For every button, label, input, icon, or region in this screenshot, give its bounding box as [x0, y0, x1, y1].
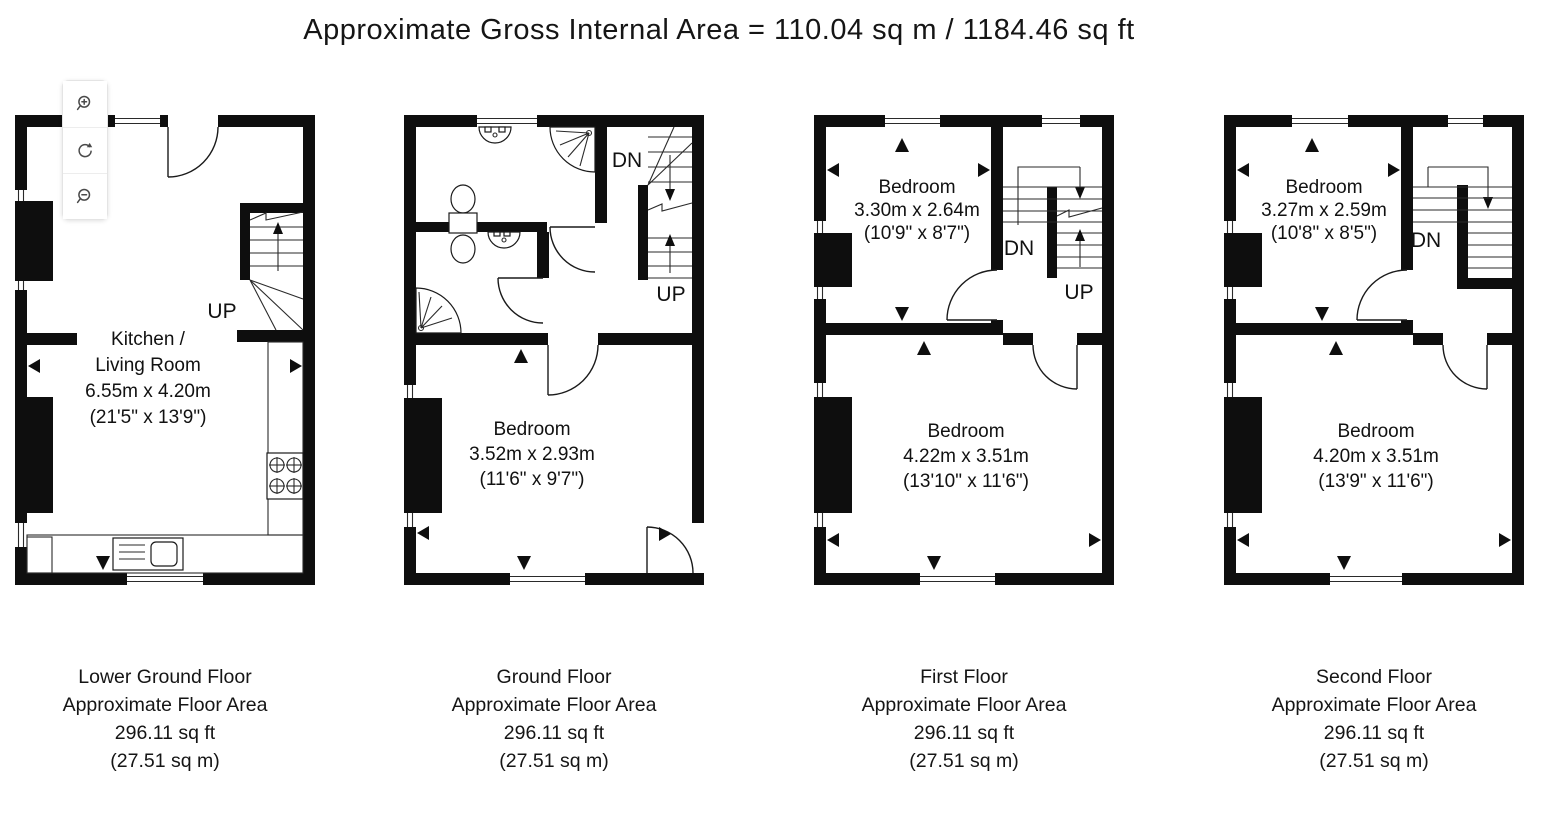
rotate-button[interactable]	[63, 127, 107, 173]
rotate-arrows-icon	[75, 141, 95, 161]
caption-area-sqm: (27.51 sq m)	[1224, 747, 1524, 775]
caption-floor-name: First Floor	[814, 663, 1114, 691]
caption-area-title: Approximate Floor Area	[814, 691, 1114, 719]
floor-caption: Ground Floor Approximate Floor Area 296.…	[404, 663, 704, 775]
caption-area-title: Approximate Floor Area	[15, 691, 315, 719]
staircase	[250, 212, 303, 330]
caption-area-title: Approximate Floor Area	[1224, 691, 1524, 719]
magnifier-plus-icon	[75, 94, 95, 114]
page-title: Approximate Gross Internal Area = 110.04…	[0, 14, 1548, 47]
room-label: Bedroom	[878, 177, 955, 198]
stair-down-label: DN	[1411, 229, 1441, 252]
floorplan-page: Approximate Gross Internal Area = 110.04…	[0, 0, 1548, 835]
room-dimensions-imperial: (13'9" x 11'6")	[1318, 471, 1433, 492]
staircase	[648, 127, 692, 278]
room-label: Kitchen /	[111, 329, 186, 350]
room-label: Living Room	[95, 355, 201, 376]
floor-first: DN UP Bedroom 3.30m x 2.64m (10'9" x 8'7…	[814, 115, 1114, 775]
caption-floor-name: Second Floor	[1224, 663, 1524, 691]
room-dimensions: 3.30m x 2.64m	[854, 200, 980, 221]
caption-floor-name: Lower Ground Floor	[15, 663, 315, 691]
floor-caption: First Floor Approximate Floor Area 296.1…	[814, 663, 1114, 775]
doors	[498, 227, 693, 573]
map-controls	[62, 80, 108, 220]
room-dimensions: 4.22m x 3.51m	[903, 446, 1029, 467]
caption-area-title: Approximate Floor Area	[404, 691, 704, 719]
floor-plan-lower-ground[interactable]: Kitchen / Living Room 6.55m x 4.20m (21'…	[15, 115, 315, 585]
room-label: Bedroom	[1285, 177, 1362, 198]
caption-area-sqm: (27.51 sq m)	[15, 747, 315, 775]
floor-plan-first[interactable]: DN UP Bedroom 3.30m x 2.64m (10'9" x 8'7…	[814, 115, 1114, 585]
walls	[404, 115, 704, 585]
room-label: Bedroom	[493, 419, 570, 440]
room-dimensions-imperial: (21'5" x 13'9")	[90, 407, 207, 428]
floor-second: DN Bedroom 3.27m x 2.59m (10'8" x 8'5") …	[1224, 115, 1524, 775]
caption-area-sqm: (27.51 sq m)	[814, 747, 1114, 775]
floor-ground: DN UP Bedroom 3.52m x 2.93m (11'6" x 9'7…	[404, 115, 704, 775]
floor-plan-ground[interactable]: DN UP Bedroom 3.52m x 2.93m (11'6" x 9'7…	[404, 115, 704, 585]
caption-area-sqft: 296.11 sq ft	[814, 719, 1114, 747]
walls	[814, 115, 1114, 585]
walls	[1224, 115, 1524, 585]
floor-lower-ground: Kitchen / Living Room 6.55m x 4.20m (21'…	[15, 115, 315, 775]
caption-area-sqft: 296.11 sq ft	[404, 719, 704, 747]
room-dimensions: 3.52m x 2.93m	[469, 444, 595, 465]
zoom-out-button[interactable]	[63, 173, 107, 219]
stair-up-label: UP	[207, 300, 236, 323]
room-dimensions: 6.55m x 4.20m	[85, 381, 211, 402]
room-label: Bedroom	[1337, 421, 1414, 442]
stair-up-label: UP	[1064, 281, 1093, 304]
stair-up-label: UP	[656, 283, 685, 306]
caption-area-sqft: 296.11 sq ft	[1224, 719, 1524, 747]
room-dimensions: 3.27m x 2.59m	[1261, 200, 1387, 221]
room-dimensions: 4.20m x 3.51m	[1313, 446, 1439, 467]
kitchen-fixtures	[27, 342, 303, 573]
room-dimensions-imperial: (13'10" x 11'6")	[903, 471, 1029, 492]
floor-caption: Lower Ground Floor Approximate Floor Are…	[15, 663, 315, 775]
caption-area-sqm: (27.51 sq m)	[404, 747, 704, 775]
floor-caption: Second Floor Approximate Floor Area 296.…	[1224, 663, 1524, 775]
caption-area-sqft: 296.11 sq ft	[15, 719, 315, 747]
room-label: Bedroom	[927, 421, 1004, 442]
room-dimensions-imperial: (10'8" x 8'5")	[1271, 223, 1377, 244]
walls	[15, 115, 315, 585]
zoom-in-button[interactable]	[63, 81, 107, 127]
entry-door	[168, 127, 218, 177]
magnifier-minus-icon	[75, 187, 95, 207]
floor-plan-second[interactable]: DN Bedroom 3.27m x 2.59m (10'8" x 8'5") …	[1224, 115, 1524, 585]
stair-down-label: DN	[612, 149, 642, 172]
caption-floor-name: Ground Floor	[404, 663, 704, 691]
stair-down-label: DN	[1004, 237, 1034, 260]
room-dimensions-imperial: (10'9" x 8'7")	[864, 223, 970, 244]
room-dimensions-imperial: (11'6" x 9'7")	[480, 469, 585, 490]
